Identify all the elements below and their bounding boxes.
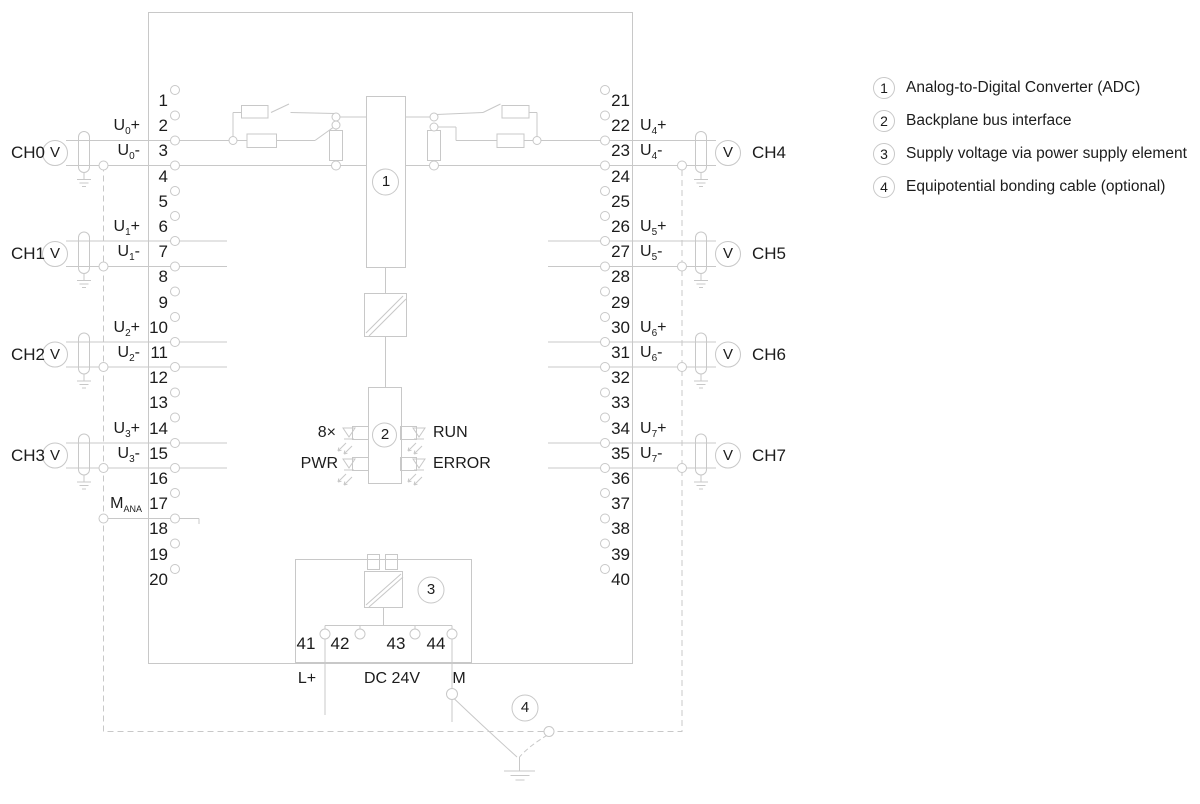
u-sign: + [657,319,666,336]
voltmeter-label: V [43,244,67,264]
m-label: M [444,668,474,690]
terminal-number: 27 [596,241,630,263]
label-u0-plus: U0+ [80,115,140,143]
terminal-number: 30 [596,317,630,339]
label-u1-plus: U1+ [80,216,140,244]
terminal-number: 1 [128,90,168,112]
terminal-number: 29 [596,292,630,314]
u-sign: - [657,142,662,159]
u-base: U [640,142,652,159]
terminal-number: 18 [128,518,168,540]
voltmeter-label: V [43,143,67,163]
u-base: U [640,420,652,437]
lplus-label: L+ [292,668,322,690]
terminal-number: 39 [596,544,630,566]
terminal-number: 8 [128,266,168,288]
u-base: U [118,445,130,462]
wiring-diagram: 1 2 3 4 5 6 7 8 9 10 11 12 13 14 15 16 1… [0,0,1200,804]
u-base: U [640,243,652,260]
terminal-number: 9 [128,292,168,314]
label-u3-plus: U3+ [80,418,140,446]
terminal-number: 24 [596,166,630,188]
terminal-number: 35 [596,443,630,465]
terminal-number: 25 [596,191,630,213]
error-led-label: ERROR [433,453,491,475]
u-sign: + [657,420,666,437]
u-base: U [640,445,652,462]
label-u3-minus: U3- [80,443,140,471]
u-base: U [118,142,130,159]
voltmeter-label: V [43,446,67,466]
u-sign: - [657,445,662,462]
terminal-number: 44 [421,633,451,655]
u-base: U [114,117,126,134]
terminal-number: 32 [596,367,630,389]
terminal-number: 36 [596,468,630,490]
u-sign: + [131,319,140,336]
u-sign: - [135,445,140,462]
right-sensor-symbols [694,132,741,490]
channel-label-ch4: CH4 [752,142,802,164]
bus-number: 2 [373,425,397,445]
voltmeter-label: V [716,244,740,264]
isolation-block [365,268,407,388]
label-u5-plus: U5+ [640,216,700,244]
voltmeter-label: V [716,143,740,163]
label-u6-minus: U6- [640,342,700,370]
legend-text: Supply voltage via power supply element [906,143,1187,165]
label-u7-plus: U7+ [640,418,700,446]
module-outline [149,13,633,664]
circuit-node-circles [229,113,541,170]
terminal-circles-left [171,86,180,574]
terminal-number: 16 [128,468,168,490]
label-u0-minus: U0- [80,140,140,168]
u-base: U [114,319,126,336]
pwr-led-label: PWR [288,453,338,475]
u-base: U [114,218,126,235]
terminal-number: 21 [596,90,630,112]
legend-number: 1 [873,78,895,98]
u-sign: + [657,218,666,235]
u-sign: + [131,218,140,235]
terminal-number: 43 [381,633,411,655]
label-u6-plus: U6+ [640,317,700,345]
voltmeter-label: V [716,446,740,466]
ground-symbol [504,757,535,780]
voltmeter-label: V [716,345,740,365]
channel-label-ch3: CH3 [3,445,45,467]
label-u5-minus: U5- [640,241,700,269]
psu-number: 3 [419,580,443,600]
u-base: U [118,344,130,361]
u-base: U [640,218,652,235]
channel-label-ch6: CH6 [752,344,802,366]
legend-text: Backplane bus interface [906,110,1071,132]
u-sign: - [657,344,662,361]
u-base: U [640,344,652,361]
label-u2-minus: U2- [80,342,140,370]
u-sign: - [135,142,140,159]
run-led-label: RUN [433,422,468,444]
legend-text: Analog-to-Digital Converter (ADC) [906,77,1140,99]
mana-sub: ANA [123,504,142,514]
channel-label-ch5: CH5 [752,243,802,265]
bond-number: 4 [513,698,537,718]
channel-label-ch1: CH1 [3,243,45,265]
mana-base: M [110,495,123,512]
u-sign: + [657,117,666,134]
channel-label-ch0: CH0 [3,142,45,164]
adc-number: 1 [374,172,398,192]
u-base: U [640,319,652,336]
channel-label-ch7: CH7 [752,445,802,467]
terminal-number: 19 [128,544,168,566]
terminal-number: 28 [596,266,630,288]
terminal-number: 13 [128,392,168,414]
label-u7-minus: U7- [640,443,700,471]
u-base: U [114,420,126,437]
u-base: U [118,243,130,260]
label-u4-minus: U4- [640,140,700,168]
label-u1-minus: U1- [80,241,140,269]
legend-number: 2 [873,111,895,131]
legend-number: 4 [873,177,895,197]
channel-label-ch2: CH2 [3,344,45,366]
terminal-number: 5 [128,191,168,213]
terminal-number: 42 [325,633,355,655]
led-count-label: 8× [296,422,336,444]
terminal-number: 23 [596,140,630,162]
label-u4-plus: U4+ [640,115,700,143]
terminal-number: 12 [128,367,168,389]
terminal-number: 22 [596,115,630,137]
terminal-number: 38 [596,518,630,540]
u-sign: - [135,344,140,361]
terminal-number: 41 [291,633,321,655]
legend-number: 3 [873,144,895,164]
u-base: U [640,117,652,134]
label-u2-plus: U2+ [80,317,140,345]
terminal-number: 4 [128,166,168,188]
label-mana: MANA [82,493,142,520]
terminal-number: 20 [128,569,168,591]
terminal-number: 40 [596,569,630,591]
terminal-number: 26 [596,216,630,238]
u-sign: - [135,243,140,260]
terminal-number: 34 [596,418,630,440]
u-sign: + [131,420,140,437]
dc24v-label: DC 24V [352,668,432,690]
voltmeter-label: V [43,345,67,365]
terminal-number: 31 [596,342,630,364]
terminal-number: 33 [596,392,630,414]
terminal-number: 37 [596,493,630,515]
legend-text: Equipotential bonding cable (optional) [906,176,1165,198]
u-sign: + [131,117,140,134]
u-sign: - [657,243,662,260]
